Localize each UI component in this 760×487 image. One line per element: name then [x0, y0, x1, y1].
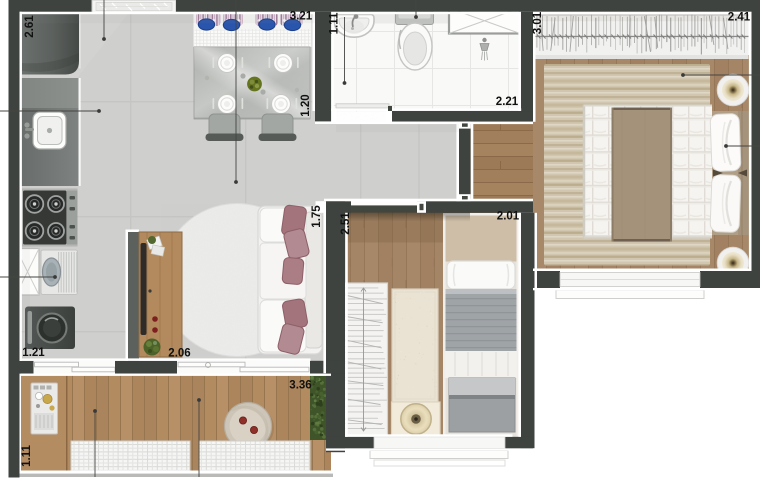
svg-text:2.51: 2.51: [340, 212, 352, 235]
svg-text:3.21: 3.21: [290, 11, 313, 23]
svg-text:2.01: 2.01: [497, 211, 520, 223]
svg-text:2.41: 2.41: [728, 12, 751, 24]
svg-text:2.21: 2.21: [496, 96, 519, 108]
svg-text:3.36: 3.36: [289, 380, 311, 392]
svg-text:1.20: 1.20: [300, 94, 312, 116]
svg-text:2.06: 2.06: [168, 348, 190, 360]
svg-text:1.75: 1.75: [311, 205, 323, 228]
svg-text:1.11: 1.11: [329, 12, 341, 34]
svg-text:1.11: 1.11: [21, 445, 33, 467]
svg-text:3.01: 3.01: [532, 11, 544, 34]
svg-text:2.61: 2.61: [24, 15, 36, 38]
svg-text:1.21: 1.21: [22, 347, 45, 359]
